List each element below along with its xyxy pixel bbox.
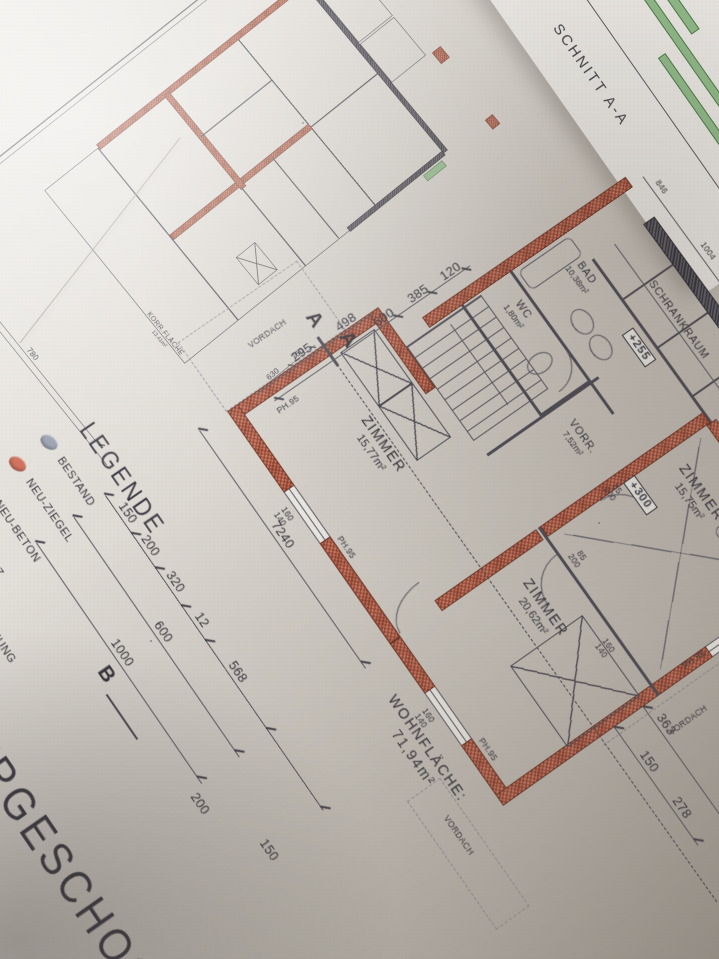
dim-value: 320 (163, 568, 188, 595)
dust-speck (150, 640, 152, 642)
dim-value-outer: 200 (188, 790, 214, 818)
detail-marker-b: B (92, 661, 121, 688)
new-brick-wall-bottom (227, 404, 295, 493)
dim-value: 568 (226, 658, 251, 685)
dim-line-total (199, 430, 366, 669)
washbasin-symbol (584, 330, 617, 364)
photo-of-floor-plans: KORR.FLÄCHE 13,41m² 630 750 780 SCHNITT … (0, 0, 719, 959)
plan-title: OBERGESCHOSS (0, 656, 190, 959)
dim-value: 150 (637, 747, 663, 775)
new-brick-wall-bottom (390, 637, 436, 694)
legend-dot-bestand (38, 431, 61, 453)
legend-label: NEU WÄRMEDÄMMUNG (0, 542, 19, 666)
room-label-bad: BAD 10,38m² (555, 246, 609, 307)
legend-label: NEU-HOLZ (0, 520, 6, 579)
dim-value: 600 (151, 618, 176, 645)
dim-line-right (643, 707, 719, 871)
dust-speck (302, 122, 304, 124)
washbasin-symbol (566, 305, 599, 339)
detail-marker-line (106, 694, 139, 740)
dust-speck (598, 522, 600, 524)
dim-value: 385 (404, 281, 431, 306)
dim-value-outer: 150 (257, 836, 283, 864)
new-brick-wall-bottom (319, 536, 400, 644)
legend-label: NEU-BETON (0, 498, 43, 565)
dim-value: 278 (669, 794, 695, 822)
legend-label: NEU-ZIEGEL (24, 476, 76, 544)
dim-value: 120 (437, 259, 464, 284)
level-marker-255: +255 (622, 327, 657, 367)
main-floor-plan: SCHRANKRAUM BAD 10,38m² +255 WC 1,80m² V… (0, 0, 719, 959)
room-label-vorraum: VORR. 7,52m² (548, 405, 608, 476)
dim-line-right2 (614, 728, 698, 846)
legend-dot-neu-ziegel (6, 453, 29, 475)
legend-label: BESTAND (55, 455, 97, 509)
